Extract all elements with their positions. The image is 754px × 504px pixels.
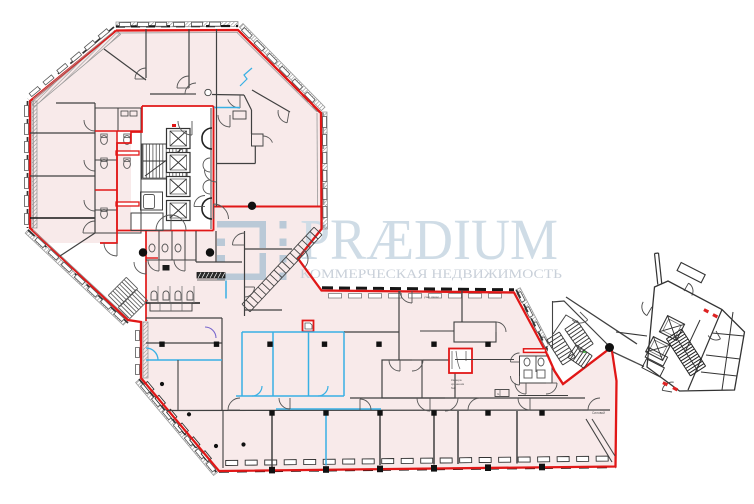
- svg-text:6м²: 6м²: [451, 386, 456, 390]
- svg-text:КОММЕРЧЕСКАЯ НЕДВИЖИМОСТЬ: КОММЕРЧЕСКАЯ НЕДВИЖИМОСТЬ: [300, 266, 563, 281]
- svg-text:PRÆDIUM: PRÆDIUM: [300, 207, 558, 272]
- svg-text:узел связи: узел связи: [424, 295, 439, 299]
- svg-text:Силовой: Силовой: [592, 411, 605, 415]
